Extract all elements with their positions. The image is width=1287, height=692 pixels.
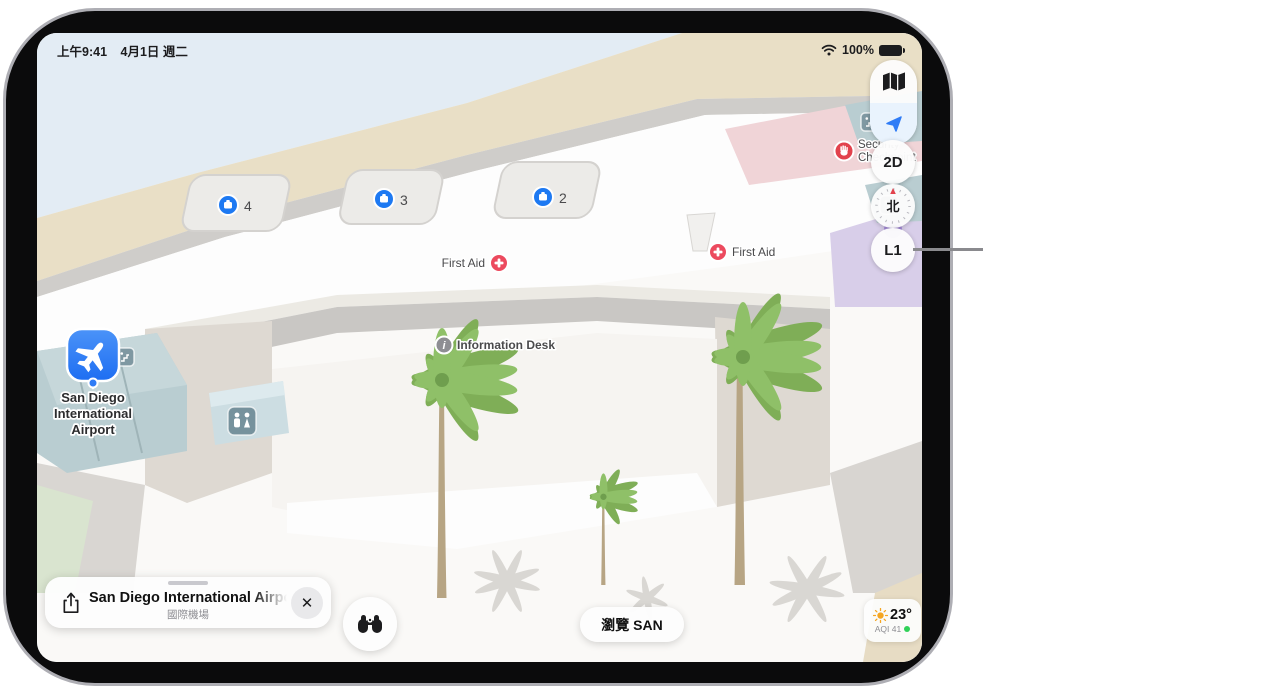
restroom-icon[interactable] bbox=[228, 407, 256, 435]
wifi-icon bbox=[821, 44, 837, 56]
2d-label: 2D bbox=[883, 154, 902, 171]
first-aid-left-label: First Aid bbox=[442, 256, 485, 270]
first-aid-icon[interactable] bbox=[490, 254, 508, 272]
date: 4月1日 週二 bbox=[121, 45, 188, 59]
indoor-map[interactable]: 4 3 2 First Aid bbox=[37, 33, 922, 662]
binoculars-icon bbox=[357, 613, 383, 635]
compass-dial: 北 bbox=[871, 184, 915, 228]
place-card-text: San Diego International Airport 國際機場 bbox=[89, 584, 287, 622]
browse-san-label: 瀏覽 SAN bbox=[601, 615, 662, 635]
first-aid-right-label: First Aid bbox=[732, 245, 775, 259]
status-bar: 上午9:41 4月1日 週二 100% bbox=[37, 33, 922, 59]
share-icon bbox=[61, 591, 81, 615]
aqi-status-dot bbox=[904, 626, 910, 632]
baggage-marker-4[interactable] bbox=[218, 195, 238, 215]
compass-north-label: 北 bbox=[886, 199, 899, 214]
carousel-2-label: 2 bbox=[559, 190, 567, 206]
aqi-label: AQI 41 bbox=[875, 624, 901, 634]
airport-label-line3: Airport bbox=[71, 422, 115, 437]
baggage-marker-3[interactable] bbox=[374, 189, 394, 209]
weather-widget[interactable]: 23° AQI 41 bbox=[864, 599, 921, 642]
first-aid-icon[interactable] bbox=[709, 243, 727, 261]
information-desk-label: Information Desk bbox=[457, 338, 555, 352]
title-fade bbox=[253, 584, 287, 622]
location-arrow-icon bbox=[884, 114, 904, 134]
look-around-button[interactable] bbox=[343, 597, 397, 651]
close-card-button[interactable]: ✕ bbox=[291, 587, 323, 619]
airport-marker-dot bbox=[89, 379, 98, 388]
airport-label-line1: San Diego bbox=[61, 390, 125, 405]
airport-label-line2: International bbox=[54, 406, 132, 421]
map-mode-pill bbox=[870, 60, 917, 145]
floor-level-button[interactable]: L1 bbox=[871, 228, 915, 272]
2d-3d-toggle-button[interactable]: 2D bbox=[871, 140, 915, 184]
information-desk-icon[interactable]: i bbox=[436, 337, 453, 354]
compass-button[interactable]: 北 bbox=[871, 184, 915, 228]
security-checkpoint-icon[interactable] bbox=[835, 142, 854, 161]
battery-icon bbox=[879, 45, 902, 56]
callout-pointer-line bbox=[913, 248, 983, 251]
place-card[interactable]: San Diego International Airport 國際機場 ✕ bbox=[45, 577, 331, 628]
carousel-3-label: 3 bbox=[400, 192, 408, 208]
level-label: L1 bbox=[884, 242, 902, 259]
share-button[interactable] bbox=[53, 585, 89, 621]
clock: 上午9:41 bbox=[57, 45, 107, 59]
maps-icon bbox=[883, 72, 905, 91]
carousel-4-label: 4 bbox=[244, 198, 252, 214]
browse-san-button[interactable]: 瀏覽 SAN bbox=[580, 607, 684, 642]
close-icon: ✕ bbox=[301, 594, 314, 612]
page: 4 3 2 First Aid bbox=[0, 0, 1287, 692]
temperature: 23° bbox=[890, 607, 912, 623]
maps-app-screen: 4 3 2 First Aid bbox=[37, 33, 922, 662]
maps-mode-button[interactable] bbox=[870, 60, 917, 103]
battery-percent: 100% bbox=[842, 43, 874, 57]
ipad-frame: 4 3 2 First Aid bbox=[3, 8, 953, 686]
baggage-marker-2[interactable] bbox=[533, 187, 553, 207]
sun-icon bbox=[873, 608, 888, 623]
